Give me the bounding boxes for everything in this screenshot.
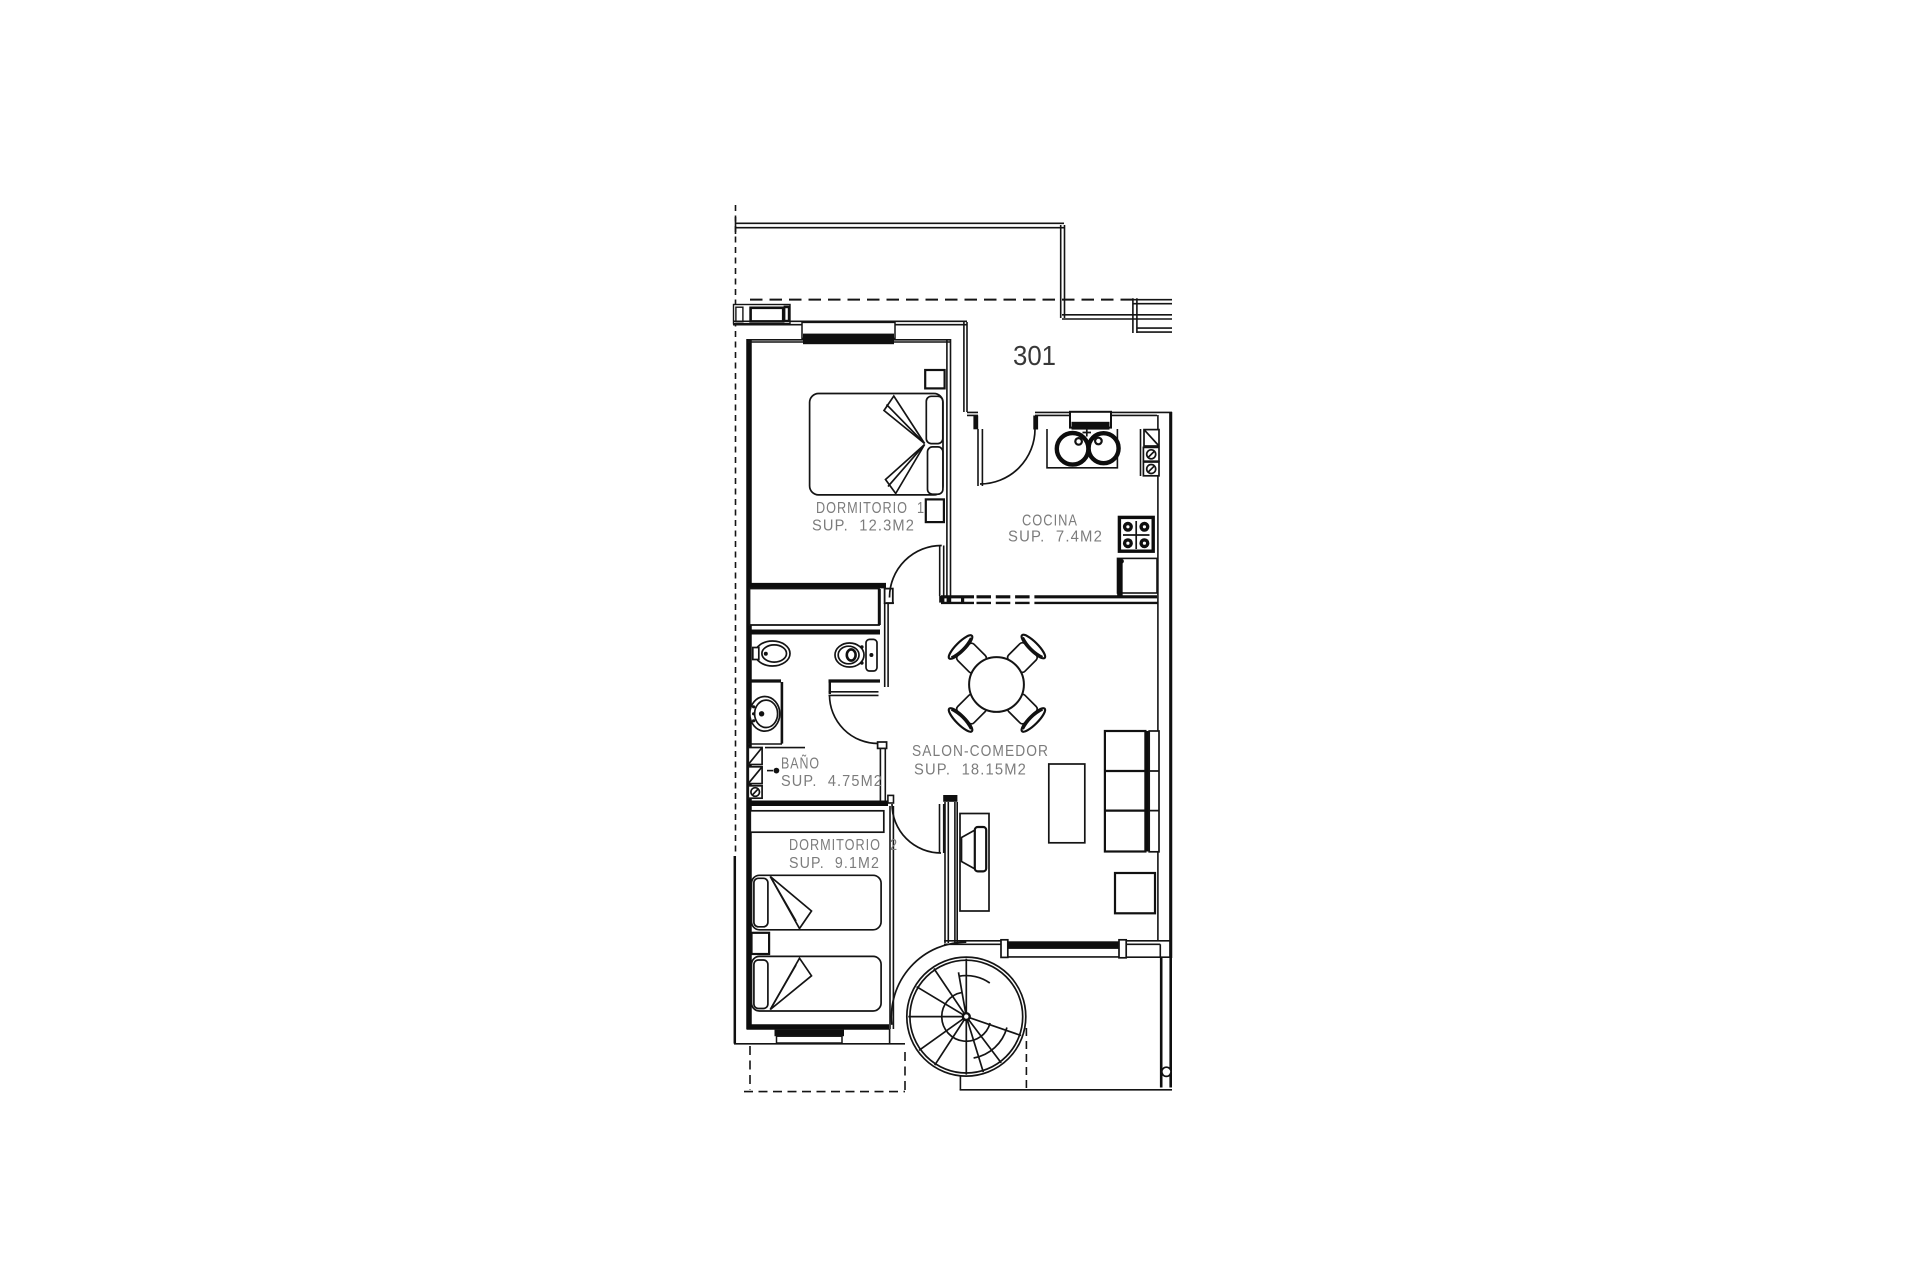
svg-text:DORMITORIO 2: DORMITORIO 2 — [789, 837, 898, 854]
svg-text:301: 301 — [1013, 340, 1056, 371]
svg-text:SALON-COMEDOR: SALON-COMEDOR — [912, 743, 1049, 760]
svg-text:SUP. 18.15M2: SUP. 18.15M2 — [914, 762, 1027, 779]
svg-text:BAÑO: BAÑO — [781, 756, 820, 773]
svg-text:DORMITORIO 1: DORMITORIO 1 — [816, 500, 925, 517]
svg-text:SUP. 12.3M2: SUP. 12.3M2 — [812, 518, 915, 535]
svg-text:SUP. 7.4M2: SUP. 7.4M2 — [1008, 529, 1103, 546]
svg-text:COCINA: COCINA — [1022, 513, 1078, 530]
svg-text:SUP. 9.1M2: SUP. 9.1M2 — [789, 855, 880, 872]
svg-text:SUP. 4.75M2: SUP. 4.75M2 — [781, 773, 883, 790]
